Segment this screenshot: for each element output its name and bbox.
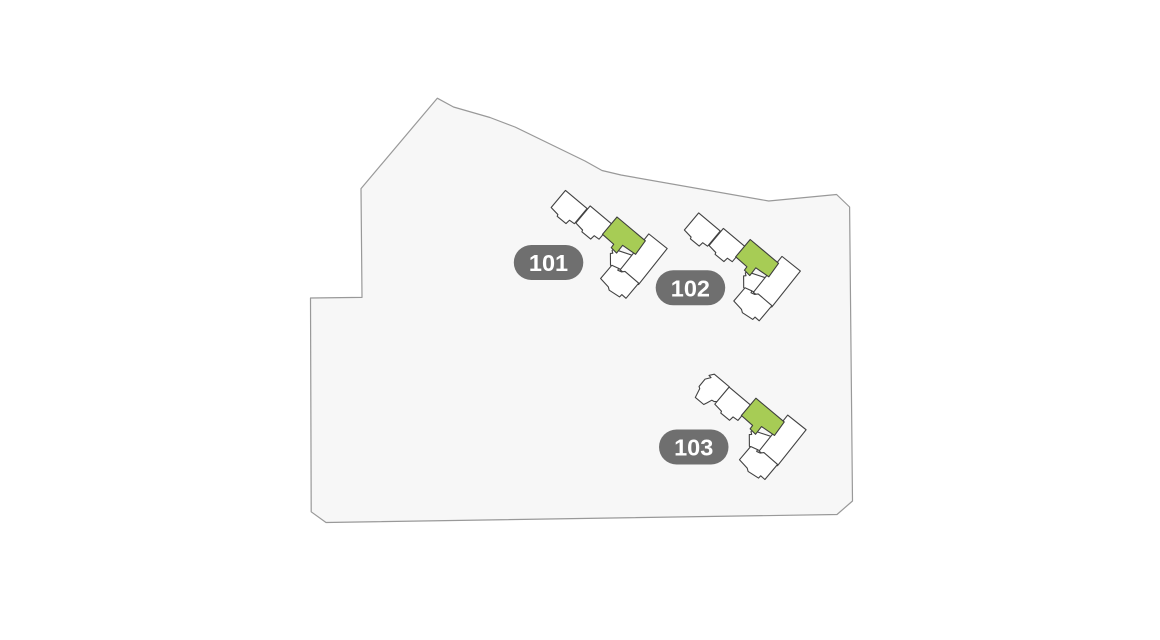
svg-text:102: 102 [671,275,710,301]
svg-text:101: 101 [529,250,568,276]
svg-text:103: 103 [674,435,713,461]
